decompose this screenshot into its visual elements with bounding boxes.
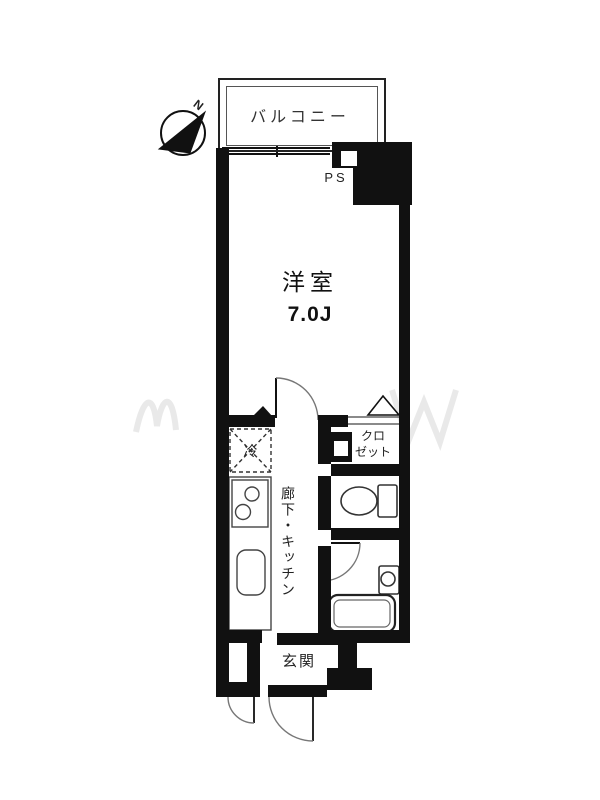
closet-label-line1: クロ <box>361 429 385 443</box>
wall-below-closet <box>331 464 410 476</box>
wall-below-toilet <box>331 528 410 540</box>
kitchen-counter <box>229 477 271 630</box>
wall-right <box>399 205 410 630</box>
balcony-label: バルコニー <box>218 103 382 127</box>
wall-bottom-entry <box>268 685 327 697</box>
north-arrow-icon <box>159 111 205 155</box>
closet-label: クロ ゼット <box>344 428 402 460</box>
hallway-kitchen-label: 廊下・キッチン <box>277 486 299 638</box>
main-room-label: 洋室 <box>238 263 382 297</box>
main-room: 洋室 7.0J <box>238 263 382 327</box>
closet-door-symbol <box>348 396 399 424</box>
main-room-size: 7.0J <box>238 303 382 327</box>
wall-ps-block <box>353 168 412 205</box>
bath-faucet-icon <box>379 566 399 594</box>
ps-niche <box>341 151 357 166</box>
wall-bottom-left <box>216 682 253 697</box>
entrance-label: 玄関 <box>262 650 336 671</box>
wall-genkan-step <box>327 668 372 690</box>
refrigerator-label: 冷 <box>230 429 271 472</box>
toilet-door-opening <box>318 464 331 476</box>
wall-room-bottom-right <box>318 415 348 427</box>
storage-door-arc <box>228 697 254 723</box>
floor-plan: バルコニー N PS 洋室 7.0J 冷 廊下・キッチン クロ ゼット 玄関 <box>0 0 600 800</box>
entrance-door-arc <box>269 697 313 741</box>
toilet-icon <box>341 485 397 517</box>
closet-label-line2: ゼット <box>355 445 391 459</box>
wall-kitchen-alcove <box>216 630 262 643</box>
room-door-arc <box>253 378 318 420</box>
bathtub-icon <box>329 595 395 632</box>
bath-door-opening <box>318 530 331 546</box>
wall-room-bottom-left <box>216 415 275 427</box>
sink-icon <box>237 550 265 595</box>
ps-label: PS <box>318 170 354 185</box>
